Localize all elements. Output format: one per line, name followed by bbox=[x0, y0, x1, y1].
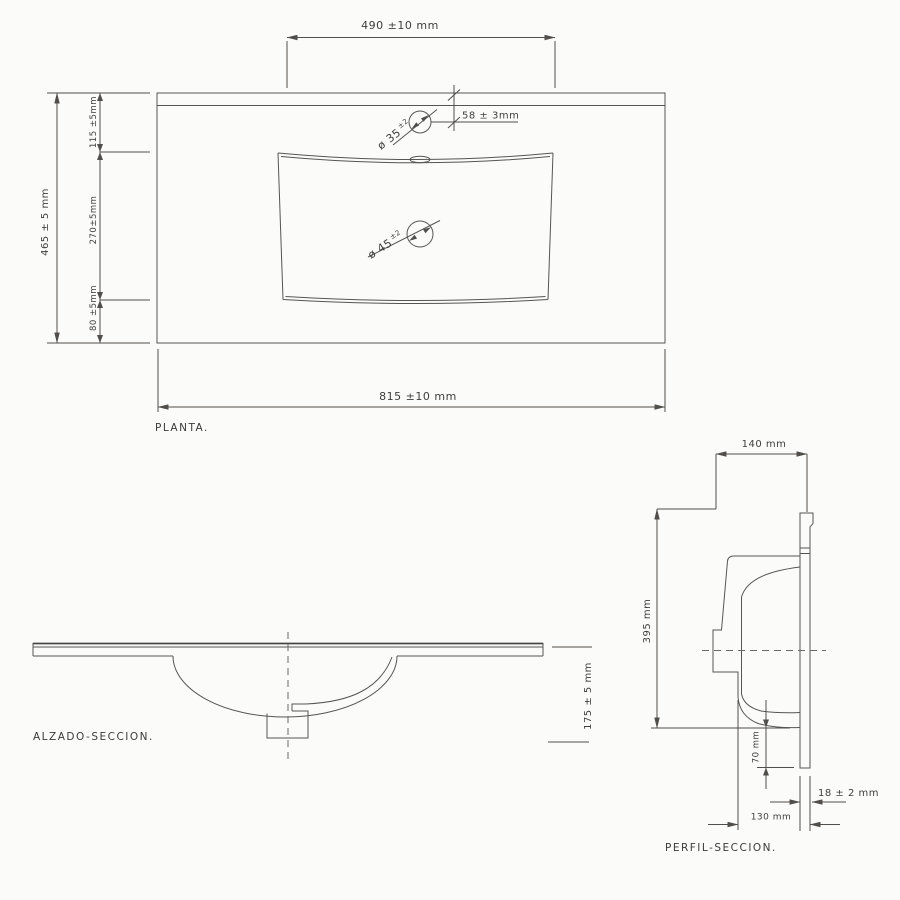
perfil-bowl bbox=[713, 556, 800, 728]
perfil-dim-bottom-depth: 130 mm bbox=[708, 813, 840, 825]
perfil-dim-drain-clearance: 70 mm bbox=[752, 700, 795, 789]
side-section-label: PERFIL-SECCION. bbox=[665, 842, 777, 854]
plan-view-label: PLANTA. bbox=[155, 422, 209, 434]
plan-drain-hole-label: ø 45 ±2 bbox=[365, 228, 406, 261]
plan-dim-basin-width: 490 ±10 mm bbox=[287, 19, 555, 88]
side-section-view: 140 mm 395 mm 70 bbox=[642, 439, 879, 854]
svg-text:18 ± 2 mm: 18 ± 2 mm bbox=[818, 788, 879, 799]
alzado-dim-height: 175 ± 5 mm bbox=[548, 647, 594, 742]
plan-dim-faucet-offset: 58 ± 3mm bbox=[431, 85, 519, 131]
dim-back-to-basin: 115 ±5mm bbox=[89, 96, 99, 148]
perfil-countertop-plate bbox=[800, 513, 813, 768]
dim-basin-depth: 270±5mm bbox=[89, 196, 99, 245]
svg-text:175 ± 5 mm: 175 ± 5 mm bbox=[583, 662, 594, 730]
plan-faucet-hole-label: ø 35 ±2 bbox=[374, 117, 414, 152]
svg-text:58 ± 3mm: 58 ± 3mm bbox=[462, 111, 519, 122]
plan-dim-chain: 115 ±5mm 270±5mm 80 ±5mm bbox=[89, 93, 150, 343]
plan-dim-total-width: 815 ±10 mm bbox=[158, 349, 665, 412]
svg-text:465 ± 5 mm: 465 ± 5 mm bbox=[40, 188, 51, 256]
svg-text:±2: ±2 bbox=[388, 228, 402, 241]
svg-text:395 mm: 395 mm bbox=[642, 599, 653, 644]
front-section-view: 175 ± 5 mm ALZADO-SECCION. bbox=[33, 632, 594, 763]
svg-text:130 mm: 130 mm bbox=[751, 813, 792, 823]
svg-text:140 mm: 140 mm bbox=[742, 439, 787, 450]
dim-basin-to-front: 80 ±5mm bbox=[89, 285, 99, 331]
technical-drawing-sheet: ø 35 ±2 58 ± 3mm ø 45 ±2 490 ±10 mm bbox=[0, 0, 900, 900]
plan-view: ø 35 ±2 58 ± 3mm ø 45 ±2 490 ±10 mm bbox=[40, 19, 665, 434]
svg-text:±2: ±2 bbox=[396, 117, 410, 130]
svg-text:70 mm: 70 mm bbox=[752, 731, 762, 764]
svg-text:ø 45: ø 45 bbox=[366, 236, 395, 261]
svg-text:490 ±10 mm: 490 ±10 mm bbox=[361, 19, 439, 32]
perfil-dim-top-depth: 140 mm bbox=[657, 439, 807, 512]
front-section-label: ALZADO-SECCION. bbox=[33, 731, 154, 743]
svg-text:815 ±10 mm: 815 ±10 mm bbox=[379, 390, 457, 403]
perfil-dim-thickness: 18 ± 2 mm bbox=[770, 788, 879, 802]
svg-text:ø 35: ø 35 bbox=[375, 126, 404, 152]
plan-basin-outline bbox=[278, 153, 553, 304]
vanity-basin-drawing: ø 35 ±2 58 ± 3mm ø 45 ±2 490 ±10 mm bbox=[0, 0, 900, 900]
perfil-dim-height: 395 mm bbox=[642, 509, 790, 728]
alzado-bowl bbox=[173, 656, 397, 738]
